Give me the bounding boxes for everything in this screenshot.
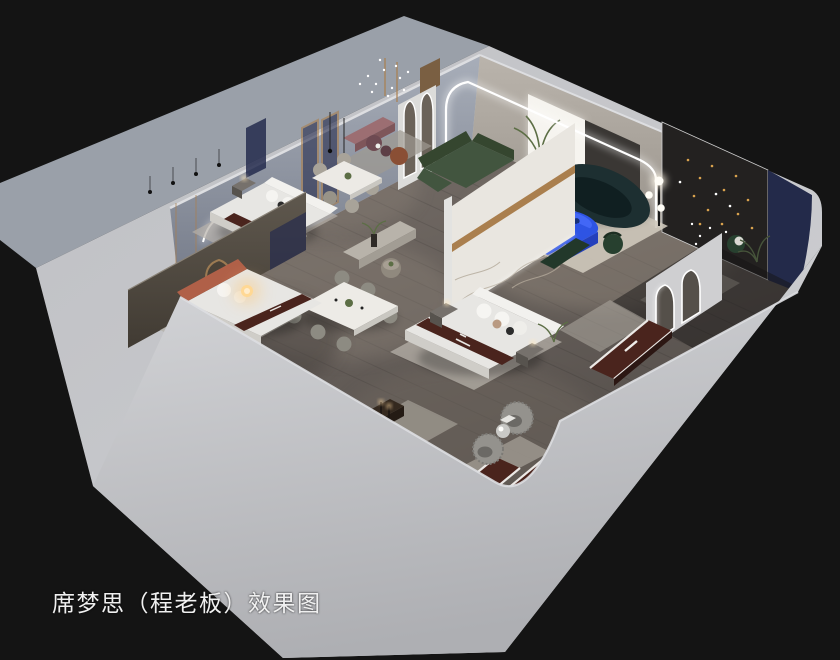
rust-armchair — [390, 147, 408, 165]
sphere-decor — [376, 144, 381, 149]
caption: 席梦思（程老板）效果图 — [52, 584, 322, 618]
navy-drape — [246, 118, 266, 178]
plum-side-table — [381, 146, 392, 157]
showroom-render — [0, 0, 840, 660]
chrome-sphere-table — [496, 424, 510, 438]
render-viewport: 席梦思（程老板）效果图 — [0, 0, 840, 660]
fuzzy-chair-2 — [473, 434, 503, 464]
plum-round-table — [366, 135, 382, 151]
